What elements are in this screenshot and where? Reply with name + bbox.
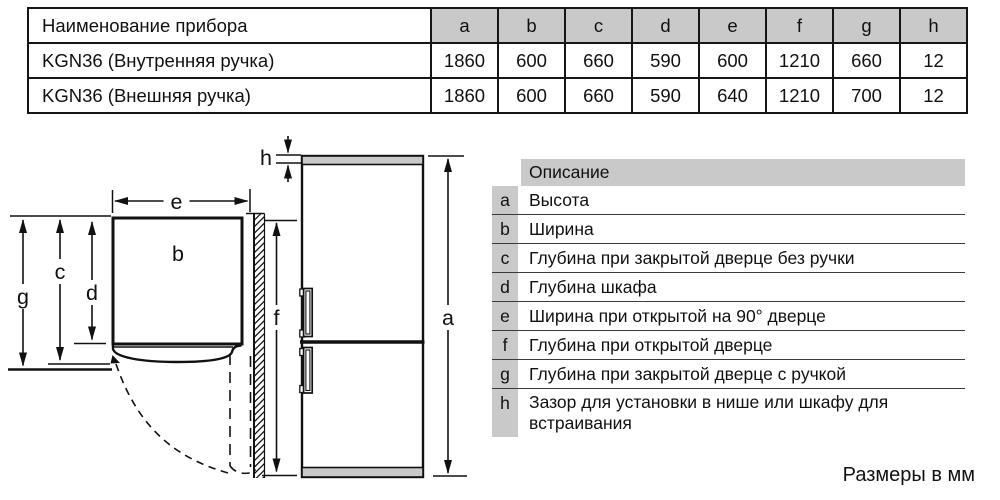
model-name: KGN36 (Внутренняя ручка) [28,43,431,78]
dim-label-h: h [260,146,272,170]
legend-text: Ширина [521,215,965,243]
dim-label-c: c [55,260,66,284]
open-door-end [230,466,256,473]
front-elevation [300,156,425,477]
fridge-body [302,156,423,477]
value-a: 1860 [431,43,498,78]
value-b: 600 [498,78,565,113]
dim-label-f: f [274,306,280,330]
swing-arrowhead [111,355,121,364]
plinth-strip [302,468,423,478]
legend-key: e [492,302,518,330]
dim-label-b: b [172,242,184,266]
value-g: 700 [833,78,900,113]
legend-row-b: b Ширина [492,215,965,244]
value-e: 640 [699,78,766,113]
spec-row-inner-handle: KGN36 (Внутренняя ручка) 1860 600 660 59… [28,43,967,78]
legend-text: Глубина при открытой дверце [521,331,965,359]
value-f: 1210 [766,43,833,78]
legend-key: c [492,244,518,272]
dim-label-a: a [442,306,454,330]
legend-key: g [492,360,518,388]
spec-table: Наименование прибора a b c d e f g h KGN… [27,7,968,114]
dim-label-g: g [17,285,29,309]
legend-row-a: a Высота [492,186,965,215]
value-c: 660 [565,43,632,78]
value-h: 12 [900,78,967,113]
legend-row-g: g Глубина при закрытой дверце с ручкой [492,360,965,389]
legend-table: Описание a Высота b Ширина c Глубина при… [492,159,965,437]
legend-text: Зазор для установки в нише или шкафу для… [521,389,965,437]
legend-text: Глубина при закрытой дверце с ручкой [521,360,965,388]
legend-text: Ширина при открытой на 90° дверце [521,302,965,330]
value-a: 1860 [431,78,498,113]
value-c: 660 [565,78,632,113]
legend-key: d [492,273,518,301]
value-e: 600 [699,43,766,78]
legend-text: Глубина шкафа [521,273,965,301]
legend-row-d: d Глубина шкафа [492,273,965,302]
top-clearance-strip [302,156,423,165]
spec-row-outer-handle: KGN36 (Внешняя ручка) 1860 600 660 590 6… [28,78,967,113]
wall-hatch [246,214,265,479]
spec-header-f: f [766,8,833,43]
spec-header-a: a [431,8,498,43]
spec-header-row: Наименование прибора a b c d e f g h [28,8,967,43]
value-b: 600 [498,43,565,78]
spec-header-name: Наименование прибора [28,8,431,43]
spec-header-h: h [900,8,967,43]
spec-header-e: e [699,8,766,43]
dimension-diagram: g c d e b f a h [0,130,470,495]
legend-key: a [492,186,518,214]
legend-row-f: f Глубина при открытой дверце [492,331,965,360]
value-g: 660 [833,43,900,78]
value-d: 590 [632,43,699,78]
value-d: 590 [632,78,699,113]
dim-label-d: d [86,281,98,305]
spec-header-c: c [565,8,632,43]
legend-row-h: h Зазор для установки в нише или шкафу д… [492,389,965,437]
legend-key: h [492,389,518,437]
legend-row-e: e Ширина при открытой на 90° дверце [492,302,965,331]
spec-header-g: g [833,8,900,43]
legend-key: f [492,331,518,359]
manual-page: Наименование прибора a b c d e f g h KGN… [0,0,1000,500]
spec-header-d: d [632,8,699,43]
legend-header-label: Описание [521,159,965,186]
spec-header-b: b [498,8,565,43]
legend-header-key-cell [492,159,518,186]
value-f: 1210 [766,78,833,113]
legend-text: Глубина при закрытой дверце без ручки [521,244,965,272]
legend-header-row: Описание [492,159,965,186]
units-note: Размеры в мм [690,464,975,487]
legend-text: Высота [521,186,965,214]
legend-row-c: c Глубина при закрытой дверце без ручки [492,244,965,273]
legend-key: b [492,215,518,243]
cabinet-top-view [113,218,242,344]
door-swing-arc [116,364,228,473]
value-h: 12 [900,43,967,78]
dim-label-e: e [171,190,183,214]
model-name: KGN36 (Внешняя ручка) [28,78,431,113]
